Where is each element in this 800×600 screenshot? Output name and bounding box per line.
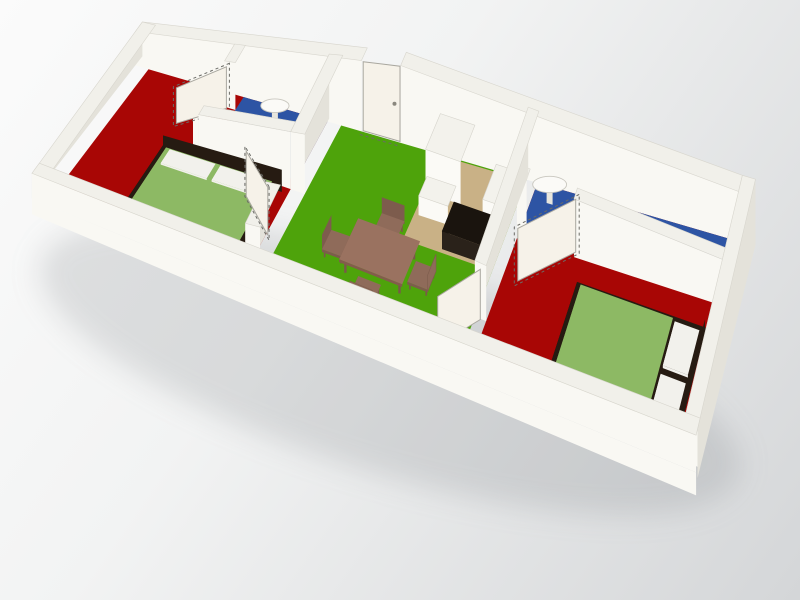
- floorplan-svg: [0, 0, 800, 600]
- entrance-door[interactable]: [363, 62, 400, 142]
- floorplan-viewport[interactable]: [0, 0, 800, 600]
